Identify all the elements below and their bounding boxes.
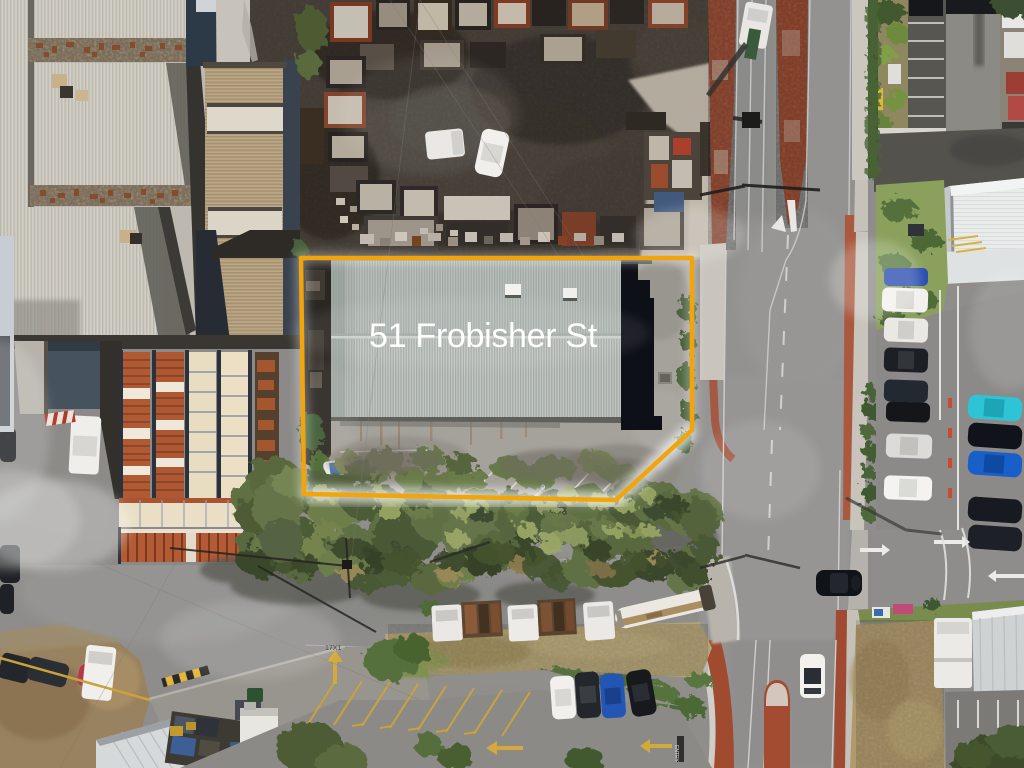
svg-text:51 Frobisher St: 51 Frobisher St	[369, 317, 598, 355]
svg-text:ENTRY: ENTRY	[673, 745, 679, 763]
